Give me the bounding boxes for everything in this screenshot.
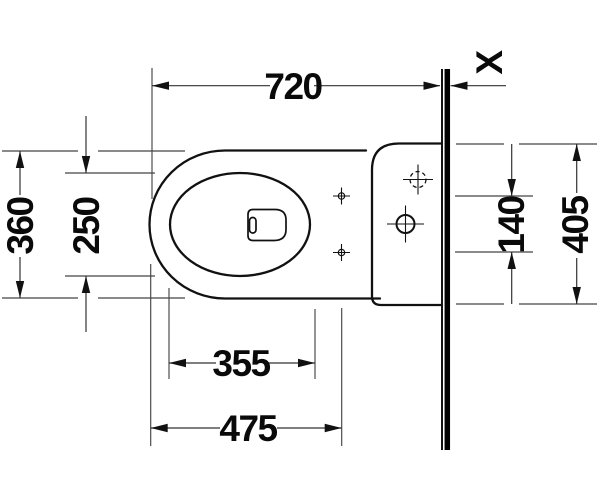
dimension-355: 355: [169, 288, 315, 384]
dimension-label-475: 475: [219, 408, 277, 449]
technical-drawing-page: 720 X 360 250 355: [0, 0, 600, 500]
dimension-wall-x: X: [451, 50, 511, 90]
dimension-140: 140: [455, 144, 533, 304]
concealed-fixing-hole: [403, 165, 433, 195]
dimension-label-360: 360: [0, 196, 41, 254]
dimension-720: 720: [152, 66, 441, 199]
wall-section-line: [442, 69, 447, 450]
cistern-outline: [333, 144, 442, 306]
dimension-label-405: 405: [555, 195, 596, 253]
dimension-label-140: 140: [491, 195, 532, 253]
dimension-label-250: 250: [66, 196, 107, 254]
seat-fixing-hole: [333, 244, 350, 261]
dimension-250: 250: [65, 116, 155, 332]
dimension-label-355: 355: [212, 343, 270, 384]
dimension-label-x: X: [469, 50, 510, 75]
toilet-bowl-outline: [149, 151, 380, 299]
trap-keyhole: [250, 218, 257, 234]
seat-fixing-hole: [333, 188, 350, 205]
technical-drawing-canvas: 720 X 360 250 355: [0, 0, 600, 500]
dimension-label-720: 720: [264, 66, 322, 107]
bowl-rim-ellipse: [170, 173, 310, 276]
water-inlet-hole: [387, 206, 424, 243]
bowl-outer-edge: [149, 151, 380, 299]
trap-outline: [248, 210, 286, 241]
